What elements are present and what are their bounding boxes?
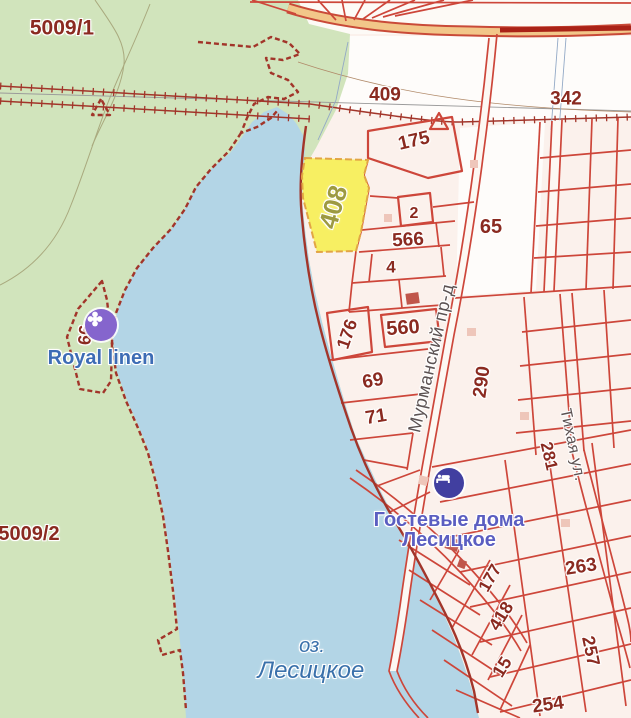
parcel-label-69: 69	[361, 370, 385, 392]
lake-label-name: Лесицкое	[258, 659, 365, 683]
parcel-label-4: 4	[386, 259, 395, 276]
parcel-label-263: 263	[564, 555, 598, 579]
parcel-label-254: 254	[531, 693, 565, 716]
poi-label-guest-houses[interactable]: Гостевые дома Лесицкое	[374, 510, 525, 550]
parcel-label-409: 409	[369, 86, 401, 105]
zone-label-5009-2: 5009/2	[0, 524, 60, 544]
parcel-label-342: 342	[550, 90, 582, 109]
lake-label-prefix: оз.	[299, 636, 325, 656]
flower-icon[interactable]	[85, 309, 117, 341]
parcel-label-2: 2	[410, 206, 419, 222]
parcel-label-566: 566	[392, 230, 425, 251]
zone-label-5009-1: 5009/1	[30, 18, 94, 39]
parcel-label-71: 71	[364, 406, 388, 428]
poi-label-guest-houses-line1: Гостевые дома	[374, 510, 525, 530]
bed-glyph	[434, 468, 452, 486]
poi-label-guest-houses-line2: Лесицкое	[374, 530, 525, 550]
cadastral-map[interactable]: 5009/1 5009/2 409 342 175 408 2 566 65 4…	[0, 0, 631, 718]
parcel-label-65: 65	[480, 217, 502, 237]
poi-label-royal-linen[interactable]: Royal linen	[48, 348, 155, 368]
flower-glyph	[85, 309, 105, 329]
bed-icon[interactable]	[434, 468, 464, 498]
parcel-label-290: 290	[470, 365, 493, 399]
parcel-label-560: 560	[386, 317, 421, 339]
